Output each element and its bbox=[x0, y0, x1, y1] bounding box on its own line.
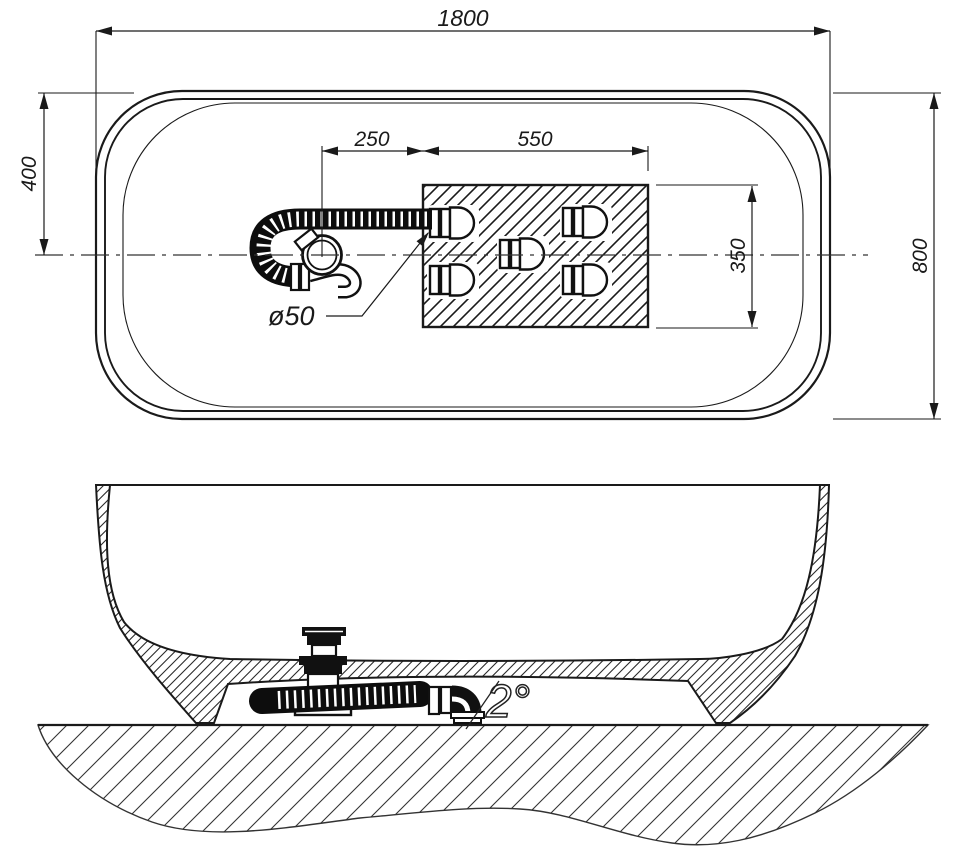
fitting-bottom-left bbox=[427, 262, 479, 299]
dim-text-1800: 1800 bbox=[437, 5, 488, 31]
fitting-bottom-right bbox=[560, 262, 612, 299]
hose-coupling-section bbox=[429, 687, 451, 714]
dimension-drain-to-deck bbox=[322, 146, 423, 257]
dim-text-drain-diameter: ø50 bbox=[268, 301, 315, 331]
section-view: 2° bbox=[38, 485, 928, 845]
fitting-top-right bbox=[560, 204, 612, 241]
dim-text-250: 250 bbox=[353, 128, 389, 151]
plug-neck bbox=[312, 645, 336, 656]
plug-body bbox=[307, 636, 341, 645]
dim-text-800: 800 bbox=[909, 238, 932, 273]
drain-flange-bottom bbox=[304, 665, 342, 674]
slope-angle-text: 2° bbox=[485, 675, 530, 727]
elbow-flange-bottom bbox=[454, 718, 481, 723]
drain-hose-section bbox=[262, 694, 420, 701]
dim-text-350: 350 bbox=[727, 238, 750, 273]
bathtub-drawing: 1800 400 800 250 550 350 ø50 bbox=[0, 0, 955, 860]
drain-flange-top bbox=[299, 656, 347, 665]
dim-text-550: 550 bbox=[517, 128, 552, 151]
fitting-top-left bbox=[427, 205, 479, 242]
dim-text-400: 400 bbox=[18, 156, 41, 191]
ground-slab bbox=[38, 725, 928, 845]
technical-drawing-sheet: 1800 400 800 250 550 350 ø50 bbox=[0, 0, 955, 860]
